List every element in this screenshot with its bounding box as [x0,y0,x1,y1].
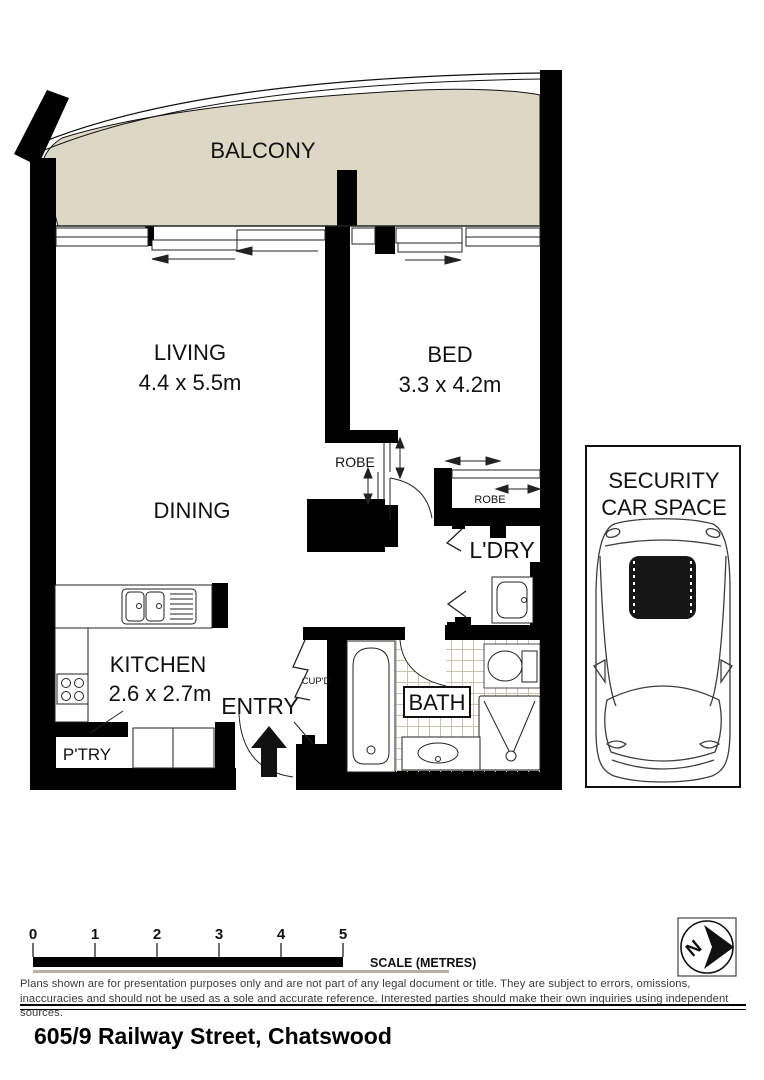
kitchen-label: KITCHEN [110,652,207,677]
security-car-space: SECURITY CAR SPACE [586,446,740,787]
shower-icon [479,696,540,770]
sink-icon [122,589,196,624]
car-space-label: CAR SPACE [601,495,727,520]
bath-label: BATH [408,690,465,715]
laundry-door [447,529,462,551]
car-space-label: SECURITY [608,468,720,493]
cupboard-door [293,640,310,700]
floorplan-page: BALCONY [0,0,764,1080]
toilet-icon [484,644,540,688]
living-sliding-door-panel [152,240,237,250]
scale-units-label: SCALE (METRES) [370,956,476,970]
bed-dims: 3.3 x 4.2m [399,372,502,397]
pantry-label: P'TRY [63,745,111,764]
living-dims: 4.4 x 5.5m [139,370,242,395]
fridge-box [133,728,214,768]
bed-sliding-door-panel [398,243,462,252]
living-label: LIVING [154,340,226,365]
entry-arrow-icon [251,726,287,777]
kitchen-dims: 2.6 x 2.7m [109,681,212,706]
robe-label: ROBE [474,494,505,506]
property-address: 605/9 Railway Street, Chatswood [34,1023,392,1050]
slide-arrow-right-icon [405,256,461,264]
bathroom: BATH [347,640,540,772]
entry-label: ENTRY [221,693,299,719]
balcony-label: BALCONY [210,138,315,163]
robe-label: ROBE [335,454,375,470]
floor-plan-canvas: BALCONY [0,0,764,1080]
living-sliding-door-panel [237,230,325,240]
scale-divider-line [33,970,449,973]
scale-bar-rule [33,957,343,967]
footer-divider [20,1004,746,1010]
disclaimer-text: Plans shown are for presentation purpose… [20,977,732,1021]
laundry-label: L'DRY [469,537,534,563]
scale-tick-label: 1 [91,926,99,943]
scale-tick-label: 2 [153,926,161,943]
bed-sliding-door-panel [396,228,462,243]
balcony: BALCONY [24,73,543,226]
bathtub-icon [347,641,395,772]
cupboard-label: CUP'D [302,676,331,687]
laundry-tub-icon [492,577,533,623]
bed-label: BED [427,342,472,367]
scale-bar: 0 1 2 3 4 5 SCALE (METRES) [29,926,476,973]
vanity-icon [402,737,480,770]
north-compass-icon: N [678,918,736,976]
windows-band [56,226,540,264]
scale-tick-label: 0 [29,926,37,943]
scale-tick-label: 3 [215,926,223,943]
laundry-door [448,591,466,617]
dining-label: DINING [154,498,231,523]
scale-tick-label: 4 [277,926,286,943]
scale-tick-label: 5 [339,926,347,943]
cooktop-icon [57,674,88,704]
